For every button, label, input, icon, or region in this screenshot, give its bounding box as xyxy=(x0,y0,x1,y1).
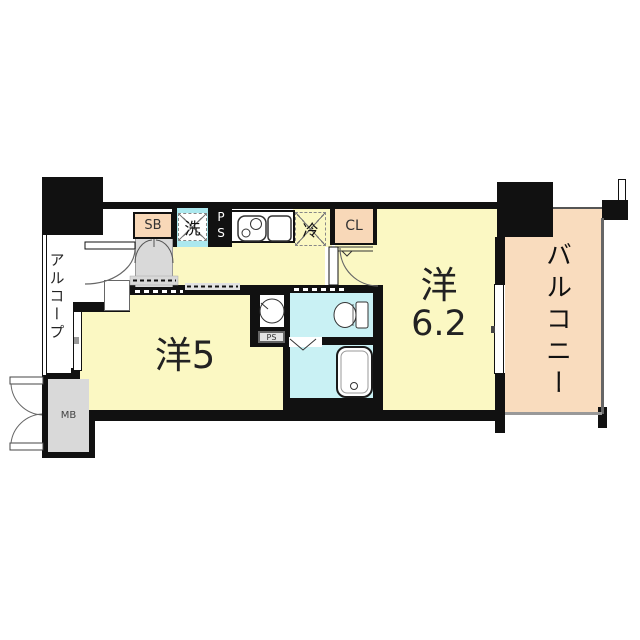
meter-box-label: MB xyxy=(48,379,89,452)
meter-box-door-leaf xyxy=(10,377,43,384)
pipe-space-kitchen-label: PS xyxy=(212,207,230,245)
bathtub-drain-icon xyxy=(351,383,358,390)
room-door-leaf xyxy=(329,247,338,285)
room-door-arc xyxy=(340,248,378,286)
room-western-5-label: 洋5 xyxy=(135,330,235,374)
room-western-6-2-label-line1: 洋 xyxy=(393,266,485,306)
round-washbasin-icon xyxy=(260,299,284,323)
alcove-label: アルコープ xyxy=(46,242,68,352)
toilet-tank-icon xyxy=(356,302,368,328)
kitchen-sink-icon xyxy=(268,216,291,241)
stove-burner-icon xyxy=(242,229,250,237)
meter-box-door-arc xyxy=(11,384,42,415)
floor-plan: SB CL 洗 冷 PS xyxy=(0,0,640,640)
entry-door-arc xyxy=(85,249,135,284)
entry-door-leaf xyxy=(85,242,135,249)
room-western-6-2-label: 洋 6.2 xyxy=(393,266,485,344)
shoe-box-door-arc xyxy=(135,240,152,263)
meter-box-door-leaf xyxy=(10,443,43,450)
room-western-6-2-label-line2: 6.2 xyxy=(393,306,485,344)
stove-burner-icon xyxy=(251,219,262,230)
shoe-box-door-arc xyxy=(156,240,173,263)
balcony-label: バルコニー xyxy=(541,238,573,403)
closet-door-notch xyxy=(342,251,352,256)
meter-box-door-arc xyxy=(11,414,42,443)
